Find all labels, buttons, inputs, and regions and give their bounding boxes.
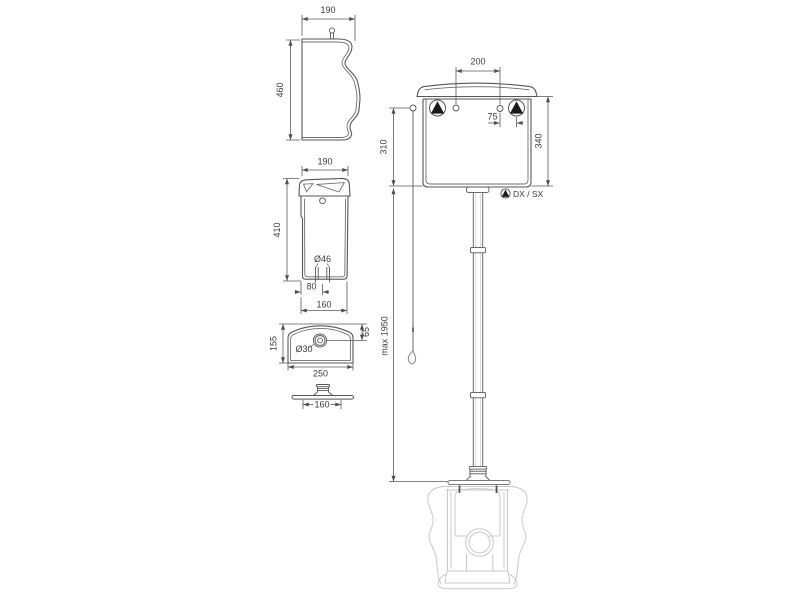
flush-pipe <box>448 187 510 493</box>
dim-label-hole-spacing: 200 <box>470 57 485 67</box>
view-side-profile-dims <box>286 15 355 140</box>
topview-hole-inner <box>318 338 323 343</box>
dim-label-section-base-width: 160 <box>316 300 331 310</box>
technical-drawing-page: 190 460 190 410 Ø46 80 160 <box>0 0 800 600</box>
dim-label-topview-hole-offset: 65 <box>361 327 371 337</box>
topview-hole-mid <box>315 336 325 346</box>
bowl-inlet-plate <box>448 481 510 485</box>
cistern-lid-top-edge <box>425 87 530 90</box>
bowl-trap-outer <box>466 529 494 557</box>
section-outlet-stub <box>316 267 330 283</box>
dim-label-outlet-offset: 80 <box>306 282 316 292</box>
dim-label-sideprofile-height: 460 <box>275 82 285 97</box>
section-lid-facet-right <box>317 183 345 192</box>
dim-label-sideprofile-width: 190 <box>320 5 335 15</box>
section-body-outline <box>301 196 348 279</box>
pipe-coupling-lower <box>471 393 486 398</box>
dim-label-section-width: 190 <box>317 157 332 167</box>
section-body-inner-line <box>305 199 346 277</box>
pipe-bowl-connector-skirt <box>466 476 489 481</box>
inlet-side-legend: DX / SX <box>501 189 544 199</box>
toilet-bowl-ghost <box>428 487 527 589</box>
view-side-section <box>299 178 350 282</box>
lid-knob <box>331 33 334 39</box>
outlet-leader-lines <box>316 264 329 268</box>
legend-triangle-icon <box>502 190 510 197</box>
cistern-front <box>410 83 537 187</box>
section-lever-hole <box>320 198 326 204</box>
section-lid-facet-left <box>304 184 314 192</box>
flange-neck <box>318 387 329 392</box>
dim-label-flange-width: 160 <box>314 400 329 410</box>
pipe-inner-highlight <box>476 194 481 466</box>
side-profile-outline <box>302 39 360 140</box>
dim-label-topview-hole-diameter: Ø30 <box>295 344 312 354</box>
pipe-bowl-connector-ribs <box>469 469 486 476</box>
chain-anchor-hole <box>410 105 416 111</box>
dim-label-topview-depth: 155 <box>269 336 279 351</box>
flange-neck-cap <box>316 385 329 387</box>
view-flange-profile <box>292 385 354 400</box>
dim-label-outlet-diameter: Ø46 <box>314 254 331 264</box>
chain-pull-handle <box>408 351 415 364</box>
bowl-right-ear <box>511 487 527 585</box>
lid-hole-left <box>453 105 459 111</box>
legend-label: DX / SX <box>513 189 544 199</box>
cistern-drawing-svg: 190 460 190 410 Ø46 80 160 <box>0 0 800 600</box>
bowl-trap-inner <box>469 532 490 553</box>
inlet-triangle-icon-left <box>431 101 444 113</box>
dim-label-inlet-offset: 75 <box>487 112 497 122</box>
pipe-coupling-upper <box>471 248 486 253</box>
dim-label-topview-width: 250 <box>313 369 328 379</box>
lid-hole-right <box>497 106 503 112</box>
cistern-lid-outline <box>417 83 537 96</box>
dim-label-section-height: 410 <box>272 222 282 237</box>
flange-skirt <box>313 392 332 396</box>
dim-label-max-height: max 1950 <box>380 316 390 356</box>
pipe-bowl-connector-neck <box>469 467 486 470</box>
inlet-symbols <box>430 100 525 116</box>
inlet-triangle-icon-right <box>510 101 523 113</box>
dim-label-cistern-height: 340 <box>534 133 544 148</box>
pipe-walls <box>473 193 482 467</box>
pull-chain <box>408 111 415 364</box>
bowl-left-ear <box>428 487 444 585</box>
view-side-profile <box>302 28 360 140</box>
pipe-top-collar <box>467 187 490 193</box>
lid-knob-top <box>329 28 334 33</box>
view-side-section-dims <box>283 166 348 314</box>
dim-label-lever-to-base: 310 <box>379 139 389 154</box>
